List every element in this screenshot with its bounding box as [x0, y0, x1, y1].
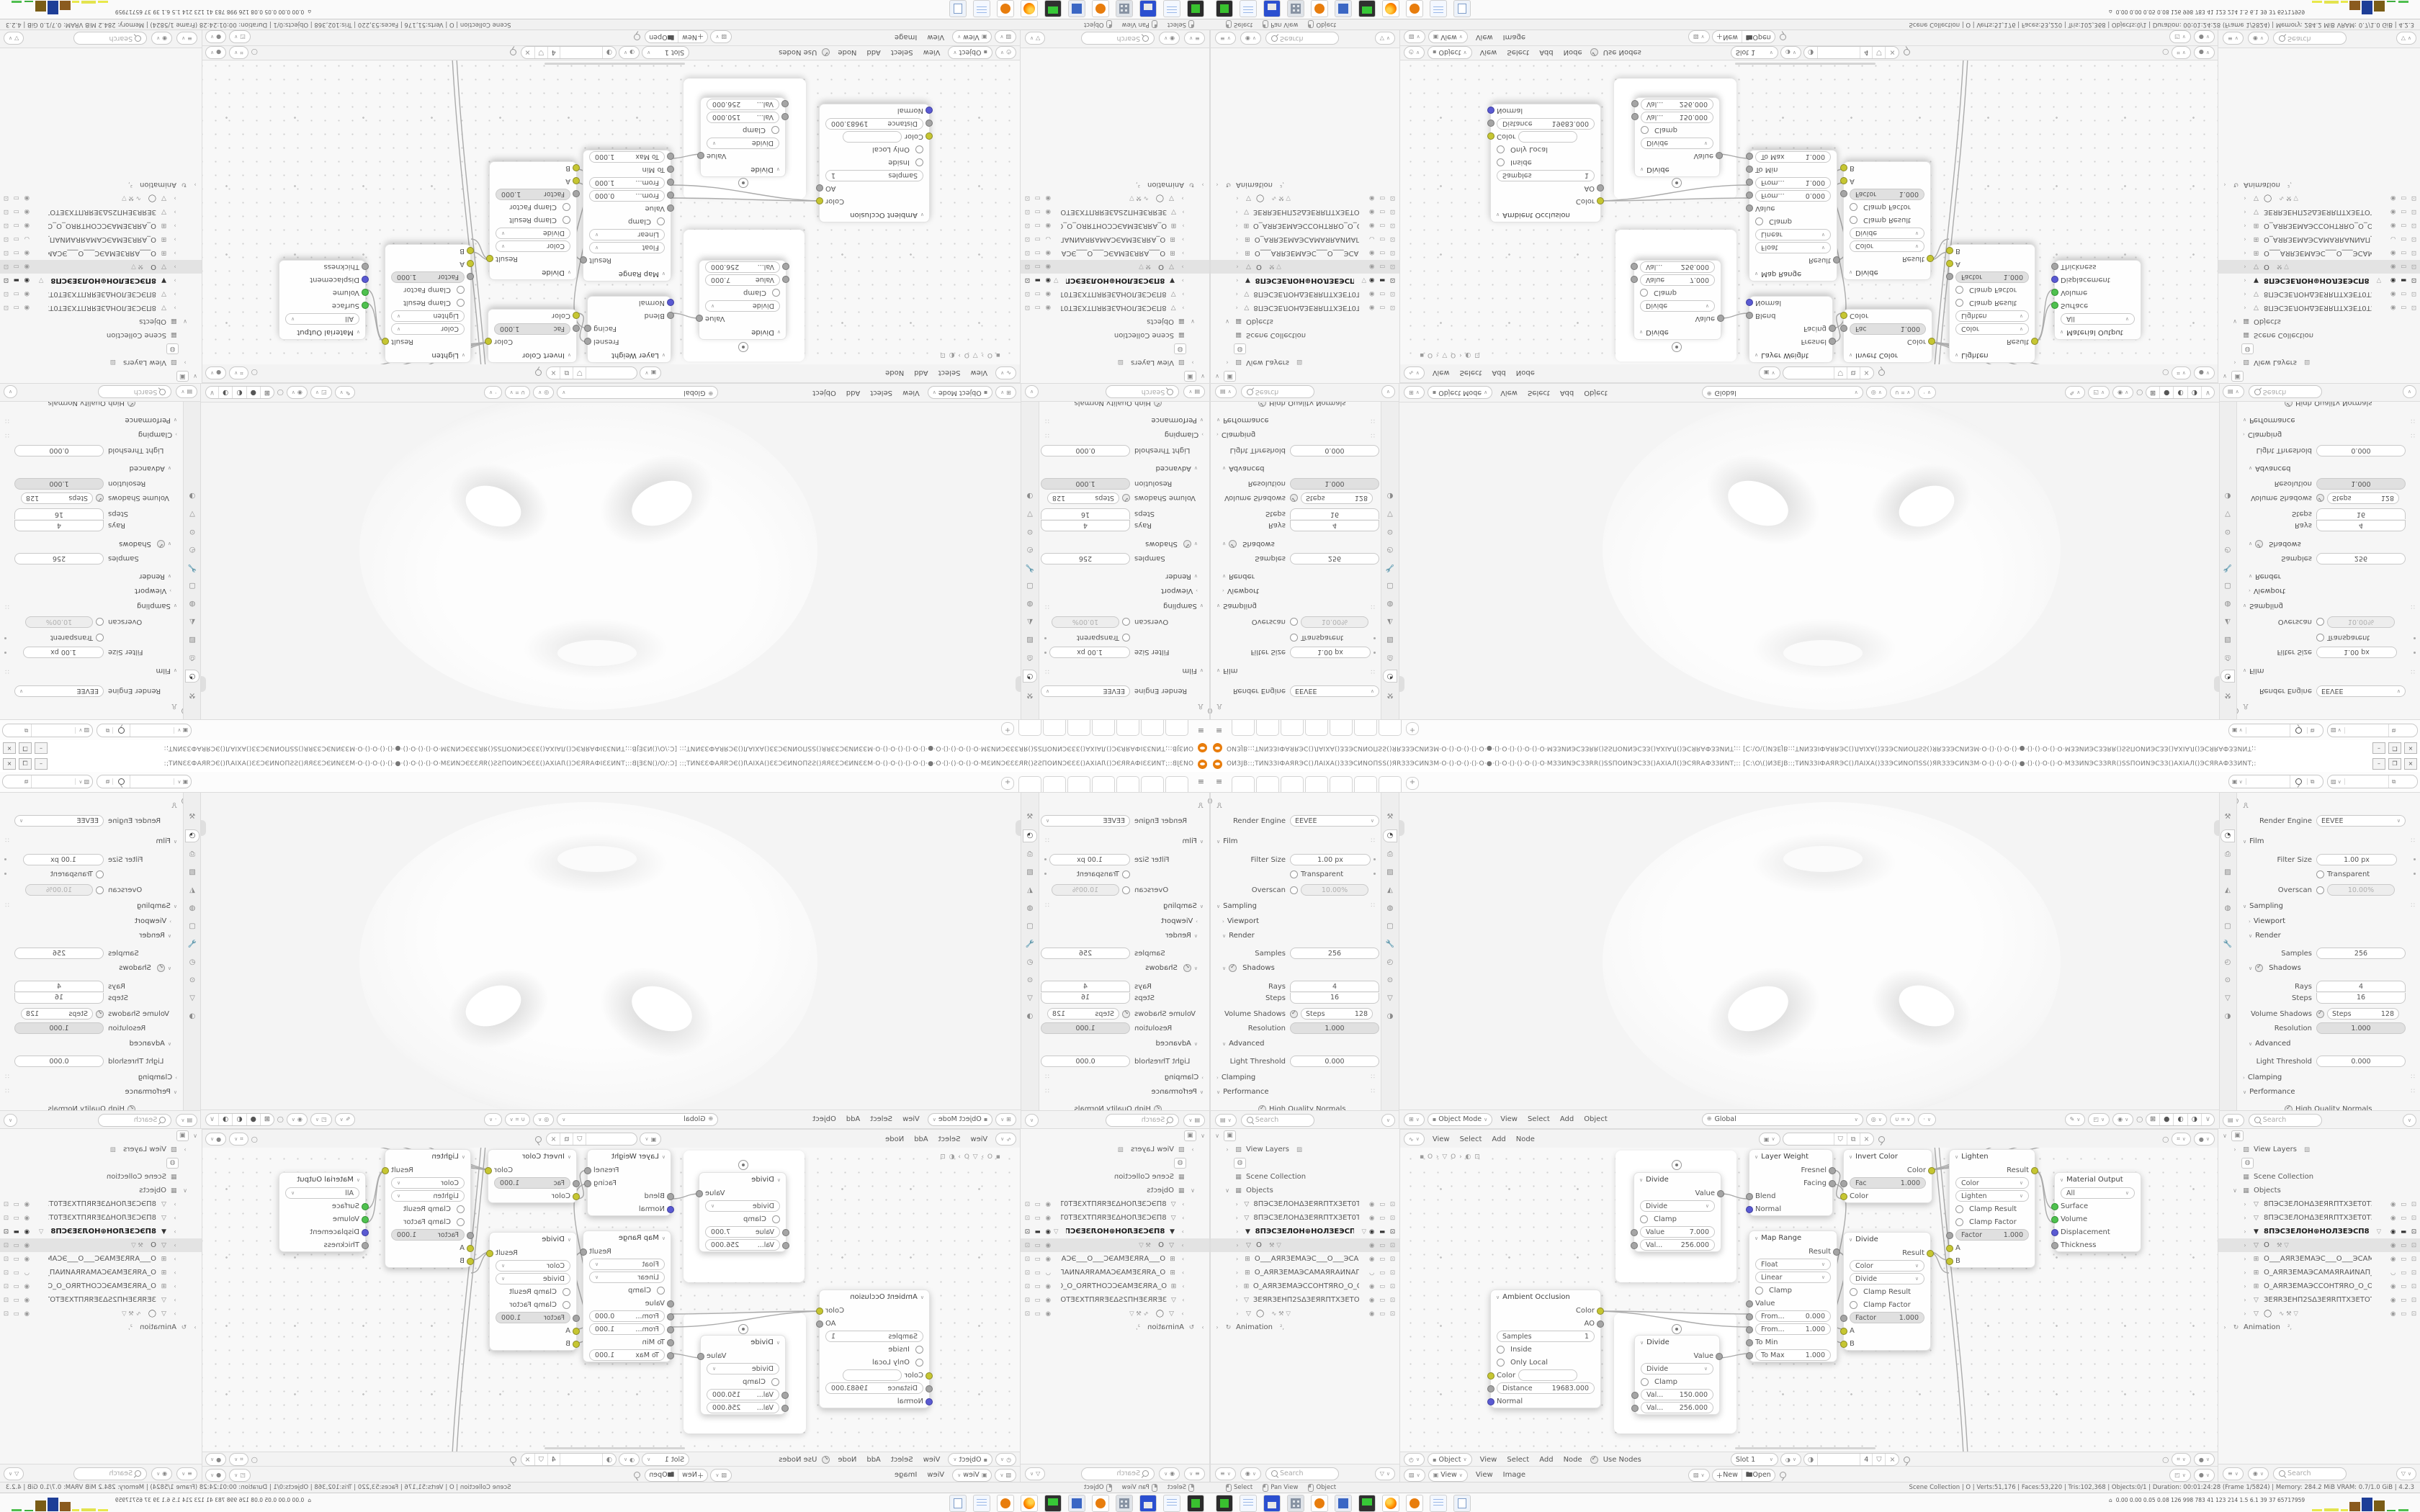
visibility-toggles[interactable]: ◡ ▭ ⊡ — [2390, 236, 2418, 243]
operation-select[interactable]: Divide∨ — [1640, 1200, 1715, 1212]
object-name[interactable]: Objects — [139, 318, 166, 325]
expander-icon[interactable]: › — [1234, 1201, 1240, 1207]
tab-physics-icon[interactable]: ◴ — [1384, 544, 1397, 555]
outliner-row[interactable]: › ▼ 8ПЭСЗЕЛОН⊕НОЛЗЕЭСП8 ▽ ◉ ▬ ⊡ — [1021, 274, 1209, 287]
reroute-node[interactable] — [1672, 342, 1682, 352]
overscan-field[interactable]: 10.00% — [1301, 616, 1368, 628]
render-engine-select[interactable]: EEVEE∨ — [1041, 685, 1130, 697]
view-object-types-button[interactable]: ◰∨ — [2088, 1113, 2110, 1126]
overlay-circle-icon[interactable]: ◯ — [2136, 1116, 2143, 1122]
tab-world-icon[interactable]: ◍ — [1384, 598, 1397, 609]
search-input[interactable]: Search — [1106, 386, 1179, 399]
workspace-tab[interactable] — [1330, 776, 1353, 792]
filter-size-field[interactable]: 1.00 px — [1049, 854, 1130, 865]
object-name[interactable]: View Layers — [123, 1146, 166, 1153]
snapping-button[interactable]: ⌗∨ — [229, 46, 248, 59]
visibility-toggles[interactable]: ◉ ▭ ⊡ — [2, 1283, 30, 1290]
shadows-checkbox[interactable] — [157, 964, 165, 972]
object-name[interactable]: ◯ — [1156, 1310, 1164, 1318]
socket-color-out[interactable] — [1928, 1167, 1935, 1174]
filter-visibility-button[interactable]: ◉∨ — [1240, 32, 1261, 45]
transparent-checkbox[interactable] — [96, 634, 104, 642]
unlink-icon[interactable]: × — [1886, 1454, 1899, 1465]
socket-value-in[interactable] — [667, 204, 674, 212]
data-type-select[interactable]: Color∨ — [1850, 1260, 1924, 1272]
object-name[interactable]: 8ПЭСЗЕЛОНΔЗЕЯRПТХЗЕТ0ТЗЕХТ — [48, 1214, 156, 1222]
taskbar-app-icon[interactable] — [1263, 1495, 1281, 1512]
visibility-toggles[interactable]: ◉ ▭ ⊡ — [2390, 1283, 2418, 1290]
section-sampling[interactable]: ∨Sampling — [1163, 902, 1204, 910]
tab-render-icon[interactable]: ◔ — [1023, 829, 1037, 842]
visibility-toggles[interactable]: ◉ ▭ ⊡ — [1369, 264, 1397, 271]
socket-color-out[interactable] — [1597, 197, 1604, 204]
expander-icon[interactable]: › — [1234, 291, 1240, 297]
image-new-open-group[interactable]: ＋ New 🖿 Open — [645, 31, 708, 44]
search-input[interactable]: Search — [1265, 32, 1339, 45]
viewport-canvas[interactable] — [201, 793, 1021, 1111]
pin-icon[interactable] — [1211, 708, 1212, 714]
close-button[interactable]: × — [3, 742, 16, 754]
display-mode-button[interactable]: ≡∨ — [2223, 1467, 2244, 1480]
unlink-icon[interactable]: × — [547, 367, 560, 379]
outliner-row[interactable]: › ▽ 8ПЭСЗЕЛОНΔЗЕЯRПТХЗЕТ0ТЗЕХТ ◉ ▭ ⊡ — [0, 1197, 202, 1211]
clamp-factor-checkbox[interactable] — [1850, 1301, 1857, 1309]
socket-facing-out[interactable] — [584, 1180, 591, 1187]
steps-field[interactable]: 16 — [1290, 509, 1379, 520]
filter-size-field[interactable]: 1.00 px — [2316, 647, 2397, 658]
mode-select[interactable]: ▪Object Mode∨ — [1428, 1113, 1492, 1126]
visibility-toggles[interactable]: ◉ ▭ ⊡ — [2390, 291, 2418, 298]
taskbar-app-icon[interactable] — [1021, 0, 1038, 17]
object-name[interactable]: 8ПЭСЗЕЛОНΔЗЕЯRПТХЗЕТ0ТЗЕХТ — [1253, 1214, 1359, 1222]
tab-modifier-icon[interactable]: 🔧 — [1023, 562, 1036, 573]
object-name[interactable]: Scene Collection — [2254, 331, 2313, 339]
outliner-row[interactable]: ∨ ▦ Objects — [1021, 1184, 1209, 1197]
socket-color-in[interactable] — [926, 132, 933, 140]
section-sampling[interactable]: ∨Sampling — [137, 602, 177, 610]
section-film[interactable]: ∨Film — [1216, 667, 1237, 675]
object-name[interactable]: 8ПЭСЗЕЛОНΔЗЕЯRПТХЗЕТ0ТЗЕХТ — [48, 290, 156, 298]
blend-mode-select[interactable]: Lighten∨ — [391, 1190, 465, 1202]
socket-b-in[interactable] — [573, 1341, 580, 1348]
proportional-edit-button[interactable]: ·∨ — [1918, 387, 1936, 400]
operation-select[interactable]: Divide∨ — [705, 1200, 780, 1212]
workspace-tab[interactable] — [1092, 720, 1115, 736]
proportional-edit-button[interactable]: ·∨ — [1918, 1113, 1936, 1126]
menu-item[interactable]: Object — [812, 1115, 836, 1123]
node-layer-weight[interactable]: ∨Layer Weight Fresnel Facing Blend Norma… — [587, 296, 671, 363]
section-viewport[interactable]: ›Viewport — [135, 587, 171, 595]
outliner-row[interactable]: ∨ ▣ — [1021, 1129, 1209, 1143]
search-input[interactable]: Search — [1241, 1114, 1314, 1127]
users-count[interactable]: 4 — [1860, 47, 1873, 58]
visibility-toggles[interactable]: ◉ ▭ ⊡ — [1369, 1310, 1397, 1318]
menu-hamburger-icon[interactable]: ≡ — [1216, 726, 1222, 735]
section-film[interactable]: ∨Film — [156, 837, 177, 845]
interpolation-select[interactable]: Linear∨ — [589, 1272, 665, 1283]
toolbar-collapse-handle[interactable] — [1016, 820, 1021, 836]
outliner-row[interactable]: › ▽ 8ПЭСЗЕЛОНΔЗЕЯRПТХЗЕТ0ТЗЕХТ ◉ ▭ ⊡ — [1021, 1211, 1209, 1225]
menu-item[interactable]: View — [923, 1456, 941, 1464]
socket-value-in[interactable] — [1631, 1405, 1639, 1412]
object-name[interactable]: ЗЕЯRЗЕНП2SΔЗЕЯRПТХЗЕТОТЗЕХТ — [1061, 1296, 1167, 1304]
overlays-button[interactable]: ●∨ — [2194, 1133, 2215, 1146]
outliner-row[interactable]: › ▨ View Layers ▨ — [1211, 356, 1399, 369]
overlay-circle-icon[interactable]: ◯ — [251, 1457, 258, 1463]
visibility-toggles[interactable]: ◉ ▭ ⊡ — [2390, 264, 2418, 271]
tab-data-icon[interactable]: ▽ — [2221, 508, 2234, 519]
shading-rendered-icon[interactable]: ◑ — [2188, 1114, 2202, 1125]
resolution-field[interactable]: 1.000 — [14, 1022, 104, 1034]
expander-icon[interactable]: › — [171, 1269, 179, 1276]
volume-steps-field[interactable]: Steps128 — [1047, 1008, 1119, 1020]
reroute-node[interactable] — [1672, 178, 1682, 188]
scene-selector[interactable]: ▣∨ ⧉ — [2228, 724, 2323, 737]
editor-type-button[interactable]: ▤∨ — [176, 386, 197, 399]
visibility-toggles[interactable]: ◉ ▭ ⊡ — [2390, 195, 2418, 202]
socket-volume-in[interactable] — [362, 289, 369, 296]
outliner-row[interactable]: › ▽ 8ПЭСЗЕЛОНΔЗЕЯRПТХЗЕТ0ТЗЕХТ ◉ ▭ ⊡ — [1021, 1197, 1209, 1211]
socket-value-in[interactable] — [781, 1405, 789, 1412]
visibility-toggles[interactable]: ◉ ▭ ⊡ — [1023, 250, 1051, 257]
visibility-toggles[interactable]: ◉ ▭ ⊡ — [1369, 1297, 1397, 1304]
filter-size-field[interactable]: 1.00 px — [1049, 647, 1130, 658]
visibility-toggles[interactable]: ◉ ▭ ⊡ — [2, 1256, 30, 1263]
taskbar-app-icon[interactable] — [949, 0, 967, 17]
interpolation-select[interactable]: Linear∨ — [1755, 1272, 1831, 1283]
shield-icon[interactable]: ⛉ — [1834, 367, 1847, 379]
to-max-field[interactable]: To Max1.000 — [589, 1349, 665, 1361]
shield-icon[interactable]: ⛉ — [534, 47, 547, 58]
expander-icon[interactable]: › — [1234, 1215, 1240, 1221]
visibility-toggles[interactable]: ◉ ▭ ⊡ — [1023, 264, 1051, 271]
tab-physics-icon[interactable]: ◴ — [1023, 544, 1036, 555]
use-nodes-checkbox[interactable] — [822, 1456, 830, 1464]
unlink-icon[interactable]: × — [521, 47, 534, 58]
unlink-icon[interactable]: × — [1860, 367, 1873, 379]
workspace-tab[interactable] — [1018, 720, 1041, 736]
object-name[interactable]: 8ПЭСЗЕЛОН⊕НОЛЗЕЭСП8 — [1066, 276, 1165, 284]
taskbar-app-icon[interactable] — [1311, 1495, 1328, 1512]
viewport-canvas[interactable] — [201, 401, 1021, 719]
rays-field[interactable]: 4 — [1290, 981, 1379, 992]
blend-mode-select[interactable]: Divide∨ — [496, 228, 570, 239]
visibility-toggles[interactable]: ◉ ▬ ⊡ — [2390, 277, 2418, 284]
expander-icon[interactable]: ∨ — [1214, 373, 1221, 379]
pin-icon[interactable] — [181, 708, 183, 714]
node-invert-color[interactable]: ∨Invert Color Color Fac1.000 Color — [1843, 309, 1932, 363]
object-name[interactable]: 8ПЭСЗЕЛОН⊕НОЛЗЕЭСП8 — [2264, 1228, 2370, 1236]
section-sampling[interactable]: ∨Sampling — [1216, 902, 1257, 910]
object-name[interactable]: О___АЯRЗЕМАЭС___О___ЭСАМЗ — [48, 249, 156, 257]
transparent-checkbox[interactable] — [1290, 870, 1298, 878]
editor-type-button[interactable]: ▨∨ — [995, 31, 1016, 44]
socket-from-max-in[interactable] — [1746, 179, 1753, 186]
object-name[interactable]: 8ПЭСЗЕЛОН⊕НОЛЗЕЭСП8 — [50, 276, 156, 284]
filter-button[interactable]: ▽∨ — [1025, 32, 1045, 45]
clamp-factor-checkbox[interactable] — [563, 204, 570, 212]
expander-icon[interactable]: › — [171, 195, 179, 202]
expander-icon[interactable]: › — [171, 1297, 179, 1303]
workspace-tab[interactable] — [1116, 720, 1139, 736]
expander-icon[interactable]: › — [2231, 1146, 2238, 1153]
snapping-button[interactable]: ⌗∨ — [2172, 1133, 2191, 1146]
tab-output-icon[interactable]: ⎙ — [186, 849, 199, 860]
visibility-toggles[interactable]: ◉ ▭ ⊡ — [2, 1310, 30, 1318]
overlay-circle-icon[interactable]: ◯ — [2136, 390, 2143, 396]
value-field[interactable]: Val...256.000 — [707, 99, 779, 110]
socket-value-out[interactable] — [696, 315, 703, 322]
transparent-checkbox[interactable] — [96, 870, 104, 878]
outliner-row[interactable]: › ⊞ О_АЯRЗЕМАЭСАМАЯRАИNАП_О ◡ ▭ ⊡ — [2218, 1266, 2420, 1279]
socket-ao-out[interactable] — [816, 184, 823, 192]
display-channels-button[interactable]: ◰∨ — [229, 1469, 251, 1482]
expander-icon[interactable]: › — [1180, 250, 1186, 256]
steps-field[interactable]: 16 — [14, 509, 104, 520]
expander-icon[interactable]: › — [1179, 195, 1186, 202]
volume-shadows-checkbox[interactable] — [1290, 1010, 1298, 1018]
annotate-tool-button[interactable]: ✎∨ — [2065, 1113, 2086, 1126]
visibility-toggles[interactable]: ◉ ▬ ⊡ — [1023, 277, 1051, 284]
menu-item[interactable]: View — [970, 369, 987, 377]
light-threshold-field[interactable]: 0.000 — [1041, 1056, 1130, 1067]
object-name[interactable]: O — [1256, 1241, 1262, 1249]
pin-icon[interactable] — [1878, 1136, 1885, 1143]
socket-displacement-in[interactable] — [2051, 276, 2058, 283]
material-id-field[interactable]: ⛉⧉ × — [1783, 366, 1874, 379]
rays-field[interactable]: 4 — [2316, 981, 2406, 992]
tab-modifier-icon[interactable]: 🔧 — [186, 939, 199, 950]
outliner-row[interactable]: ◍ — [0, 1156, 202, 1170]
socket-distance-in[interactable] — [926, 120, 933, 127]
data-type-select[interactable]: Color∨ — [1955, 1177, 2029, 1189]
object-name[interactable]: Objects — [139, 1187, 166, 1194]
menu-item[interactable]: View — [1500, 389, 1518, 397]
expander-icon[interactable]: › — [1180, 1256, 1186, 1262]
menu-item[interactable]: Node — [1564, 49, 1582, 57]
expander-icon[interactable]: › — [192, 1324, 199, 1331]
menu-item[interactable]: Select — [870, 389, 892, 397]
image-new-open-group[interactable]: ＋ New 🖿 Open — [645, 1469, 708, 1482]
section-clamping[interactable]: ›Clamping — [1165, 431, 1204, 438]
object-name[interactable]: ◯ — [1156, 194, 1164, 202]
visibility-toggles[interactable]: ◉ ▭ ⊡ — [1023, 1215, 1051, 1222]
volume-shadows-checkbox[interactable] — [96, 1010, 104, 1018]
expander-icon[interactable]: › — [171, 305, 179, 311]
visibility-toggles[interactable]: ◉ ▭ ⊡ — [1369, 209, 1397, 216]
light-threshold-field[interactable]: 0.000 — [1041, 445, 1130, 456]
taskbar-app-icon[interactable] — [1216, 1495, 1233, 1512]
clamp-checkbox[interactable] — [1641, 127, 1649, 135]
taskbar-app-icon[interactable] — [1430, 1495, 1447, 1512]
socket-a-in[interactable] — [467, 1245, 474, 1252]
section-viewport[interactable]: ›Viewport — [2249, 917, 2285, 925]
shadows-checkbox[interactable] — [2255, 540, 2263, 548]
steps-field[interactable]: 16 — [2316, 509, 2406, 520]
section-performance[interactable]: ∨Performance — [1216, 416, 1269, 424]
tab-viewlayer-icon[interactable]: ▨ — [2221, 634, 2234, 645]
filter-visibility-button[interactable]: ◉∨ — [1240, 1467, 1261, 1480]
material-browse-button[interactable]: ▣∨ — [1759, 366, 1780, 379]
visibility-toggles[interactable]: ◉ ▭ ⊡ — [2390, 1256, 2418, 1263]
volume-shadows-checkbox[interactable] — [2316, 495, 2324, 503]
visibility-toggles[interactable]: ◉ ▭ ⊡ — [2390, 209, 2418, 216]
gizmos-button[interactable]: ◉∨ — [2112, 387, 2133, 400]
material-id-field[interactable]: ◑ 4 ⛉ × — [1803, 1453, 1899, 1466]
tab-constraint-icon[interactable]: ⊙ — [186, 975, 199, 986]
section-clamping[interactable]: ›Clamping — [2243, 431, 2282, 438]
tab-scene-icon[interactable]: ◭ — [186, 885, 199, 896]
tab-data-icon[interactable]: ▽ — [1023, 993, 1036, 1004]
section-sampling[interactable]: ∨Sampling — [2243, 602, 2283, 610]
render-engine-select[interactable]: EEVEE∨ — [1290, 685, 1379, 697]
visibility-toggles[interactable]: ◉ ▭ ⊡ — [1369, 222, 1397, 230]
shield-icon[interactable]: ⛉ — [1873, 47, 1886, 58]
section-advanced[interactable]: ∨Advanced — [1222, 1040, 1265, 1048]
node-material-output[interactable]: ∨Material Output All∨ Surface Volume Dis… — [279, 260, 366, 340]
expander-icon[interactable]: › — [2241, 1310, 2249, 1317]
resolution-field[interactable]: 1.000 — [1290, 478, 1379, 490]
menu-item[interactable]: View — [1500, 1115, 1518, 1123]
outliner-row[interactable]: › ▽ ЗЕЯRЗЕНП2SΔЗЕЯRПТХЗЕТОТЗЕХТ ◉ ▭ ⊡ — [0, 1293, 202, 1307]
pin-icon[interactable] — [181, 798, 183, 804]
expander-icon[interactable]: ∨ — [2221, 373, 2228, 379]
filter-visibility-button[interactable]: ◉∨ — [1159, 32, 1180, 45]
tab-material-icon[interactable]: ◑ — [2221, 490, 2234, 501]
object-name[interactable]: О_АЯRЗЕМАЭСАМАЯRАИNАП_О — [1255, 235, 1359, 243]
tab-output-icon[interactable]: ⎙ — [1384, 849, 1397, 860]
shading-mode-switch[interactable]: ⊞ ● ◐ ◑ ∨ — [2146, 387, 2215, 400]
volume-steps-field[interactable]: Steps128 — [1301, 1008, 1373, 1020]
editor-type-button[interactable]: ∿∨ — [995, 366, 1016, 379]
object-name[interactable]: ЗЕЯRЗЕНП2SΔЗЕЯRПТХЗЕТОТЗЕХТ — [48, 1296, 156, 1304]
tab-scene-icon[interactable]: ◭ — [1023, 616, 1036, 627]
image-mode-select[interactable]: ▣View∨ — [1428, 1469, 1468, 1482]
filter-button[interactable]: ▽∨ — [1025, 1467, 1045, 1480]
to-max-field[interactable]: To Max1.000 — [589, 151, 665, 163]
image-browse-button[interactable]: ▨∨ — [710, 1469, 732, 1482]
node-ambient-occlusion[interactable]: ∨Ambient Occlusion Color AO Samples1 Ins… — [1490, 1290, 1601, 1408]
clamp-checkbox[interactable] — [1640, 1215, 1648, 1223]
editor-type-button[interactable]: ◴∨ — [1404, 46, 1425, 59]
tab-object-icon[interactable]: ▢ — [2221, 921, 2234, 932]
menu-item[interactable]: Select — [1507, 1456, 1529, 1464]
object-name[interactable]: Scene Collection — [1246, 1173, 1306, 1181]
node-material-output[interactable]: ∨Material Output All∨ Surface Volume Dis… — [2054, 1172, 2141, 1252]
expander-icon[interactable]: › — [171, 1310, 179, 1317]
visibility-toggles[interactable]: ◉ ▭ ⊡ — [2, 195, 30, 202]
section-sampling[interactable]: ∨Sampling — [1216, 602, 1257, 610]
factor-field[interactable]: Factor1.000 — [496, 189, 570, 200]
socket-blend-in[interactable] — [1746, 312, 1753, 319]
outliner-row[interactable]: › ▼ 8ПЭСЗЕЛОН⊕НОЛЗЕЭСП8 ▽ ◉ ▬ ⊡ — [1211, 274, 1399, 287]
socket-distance-in[interactable] — [926, 1385, 933, 1392]
only-local-checkbox[interactable] — [915, 146, 923, 154]
outliner-row[interactable]: › ▽ ЗЕЯRЗЕНП2SΔЗЕЯRПТХЗЕТОТЗЕХТ ◉ ▭ ⊡ — [1021, 1293, 1209, 1307]
taskbar-app-icon[interactable] — [1092, 1495, 1109, 1512]
visibility-toggles[interactable]: ◉ ▬ ⊡ — [2, 277, 30, 284]
outliner-row[interactable]: › ↻ Animation ², — [0, 178, 202, 192]
material-id-field[interactable]: ◑ 4 ⛉ × — [1803, 46, 1899, 59]
object-name[interactable]: Animation — [1236, 181, 1273, 189]
clamp-result-checkbox[interactable] — [563, 217, 570, 225]
section-clamping[interactable]: ›Clamping — [138, 1074, 177, 1081]
clamp-checkbox[interactable] — [771, 1378, 779, 1386]
object-name[interactable]: Objects — [2254, 318, 2281, 325]
section-film[interactable]: ∨Film — [2243, 667, 2264, 675]
expander-icon[interactable]: › — [1234, 1228, 1240, 1235]
tab-constraint-icon[interactable]: ⊙ — [2221, 526, 2234, 537]
section-performance[interactable]: ∨Performance — [125, 1088, 178, 1096]
outliner-row[interactable]: ∨ ▦ Objects — [0, 1184, 202, 1197]
tab-object-icon[interactable]: ▢ — [186, 580, 199, 591]
object-name[interactable]: О_АЯRЗЕМАЭСАМАЯRАИNАП_О — [1061, 235, 1165, 243]
socket-surface-in[interactable] — [362, 1203, 369, 1210]
visibility-toggles[interactable]: ◉ ▭ ⊡ — [1023, 291, 1051, 298]
factor-field[interactable]: Factor1.000 — [391, 1229, 465, 1241]
tab-scene-icon[interactable]: ◭ — [1023, 885, 1036, 896]
reroute-node[interactable] — [738, 1160, 748, 1170]
overscan-field[interactable]: 10.00% — [25, 884, 93, 896]
view-layer-selector[interactable]: ▨∨ ⧉ — [2327, 775, 2418, 788]
menu-hamburger-icon[interactable]: ≡ — [1198, 777, 1204, 786]
visibility-toggles[interactable]: ◡ ▭ ⊡ — [2390, 1269, 2418, 1277]
socket-thickness-in[interactable] — [2051, 1242, 2058, 1249]
section-shadows[interactable]: ∨Shadows — [1222, 540, 1275, 548]
from-max-field[interactable]: From...1.000 — [1755, 177, 1831, 189]
socket-from-min-in[interactable] — [667, 192, 674, 199]
search-input[interactable]: Search — [1081, 1467, 1155, 1480]
tab-material-icon[interactable]: ◑ — [1023, 1011, 1036, 1022]
outliner-row[interactable]: › ▽ ◯ ∿ ⚒ ▽ ◉ ▭ ⊡ — [1021, 192, 1209, 205]
render-engine-select[interactable]: EEVEE∨ — [2316, 815, 2406, 827]
menu-item[interactable]: Select — [1460, 369, 1482, 377]
pin-icon[interactable] — [1211, 798, 1212, 804]
socket-fresnel-out[interactable] — [584, 1167, 591, 1174]
section-advanced[interactable]: ∨Advanced — [129, 1040, 171, 1048]
node-divide-math-2[interactable]: ∨Divide Value Divide∨ Clamp Val...150.00… — [1634, 97, 1720, 177]
expander-icon[interactable]: › — [1234, 1297, 1240, 1303]
expander-icon[interactable]: › — [2241, 222, 2249, 229]
object-name[interactable]: О___АЯRЗЕМАЭС___О___ЭСАМЗ — [1061, 249, 1165, 257]
section-performance[interactable]: ∨Performance — [1152, 1088, 1204, 1096]
pin-icon[interactable] — [118, 778, 125, 785]
tab-render-icon[interactable]: ◔ — [2220, 670, 2235, 683]
socket-ao-out[interactable] — [816, 1320, 823, 1328]
section-viewport[interactable]: ›Viewport — [1222, 917, 1259, 925]
snap-toggle[interactable]: ◎∨ — [533, 1113, 554, 1126]
object-name[interactable]: View Layers — [1131, 1146, 1174, 1153]
expander-icon[interactable]: › — [2241, 1283, 2249, 1290]
outliner-row[interactable]: ∨ ▦ Objects — [1211, 1184, 1399, 1197]
editor-type-button[interactable]: ▨∨ — [1404, 1469, 1425, 1482]
object-name[interactable]: О_АЯRЗЕМАЭСАМАЯRАИNАП_О — [2264, 235, 2372, 243]
image-browse-button[interactable]: ▨∨ — [1688, 31, 1710, 44]
from-min-field[interactable]: From...0.000 — [589, 190, 665, 202]
menu-item[interactable]: Add — [866, 49, 880, 57]
filter-button[interactable]: ▽∨ — [2396, 32, 2416, 45]
tab-constraint-icon[interactable]: ⊙ — [1023, 975, 1036, 986]
use-nodes-checkbox[interactable] — [822, 49, 830, 57]
slot-select[interactable]: Slot 1∨ — [1731, 46, 1778, 59]
visibility-toggles[interactable]: ◉ ▭ ⊡ — [2, 1201, 30, 1208]
socket-volume-in[interactable] — [2051, 1216, 2058, 1223]
visibility-toggles[interactable]: ◉ ▬ ⊡ — [1369, 1228, 1397, 1236]
display-channels-button[interactable]: ◰∨ — [2169, 31, 2191, 44]
socket-color-out[interactable] — [816, 197, 823, 204]
use-nodes-checkbox[interactable] — [1590, 49, 1598, 57]
node-ambient-occlusion[interactable]: ∨Ambient Occlusion Color AO Samples1 Ins… — [1490, 104, 1601, 222]
